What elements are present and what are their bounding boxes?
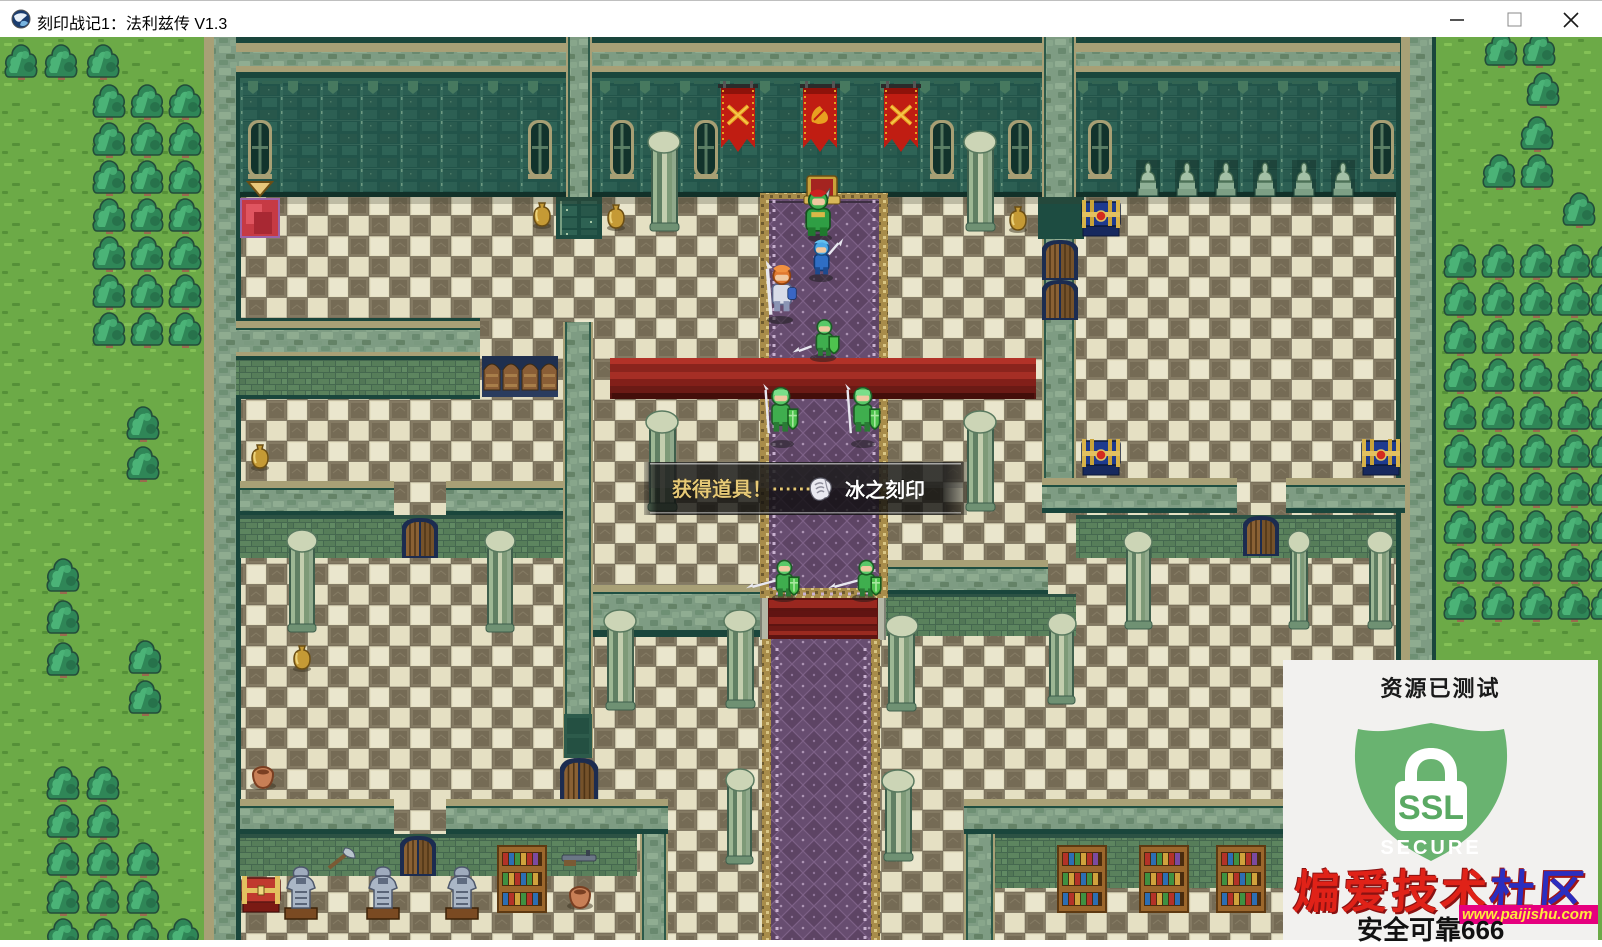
svg-text:获得道具！······: 获得道具！······ bbox=[672, 477, 812, 501]
svg-text:SSL: SSL bbox=[1398, 789, 1464, 827]
svg-text:冰之刻印: 冰之刻印 bbox=[845, 478, 925, 502]
